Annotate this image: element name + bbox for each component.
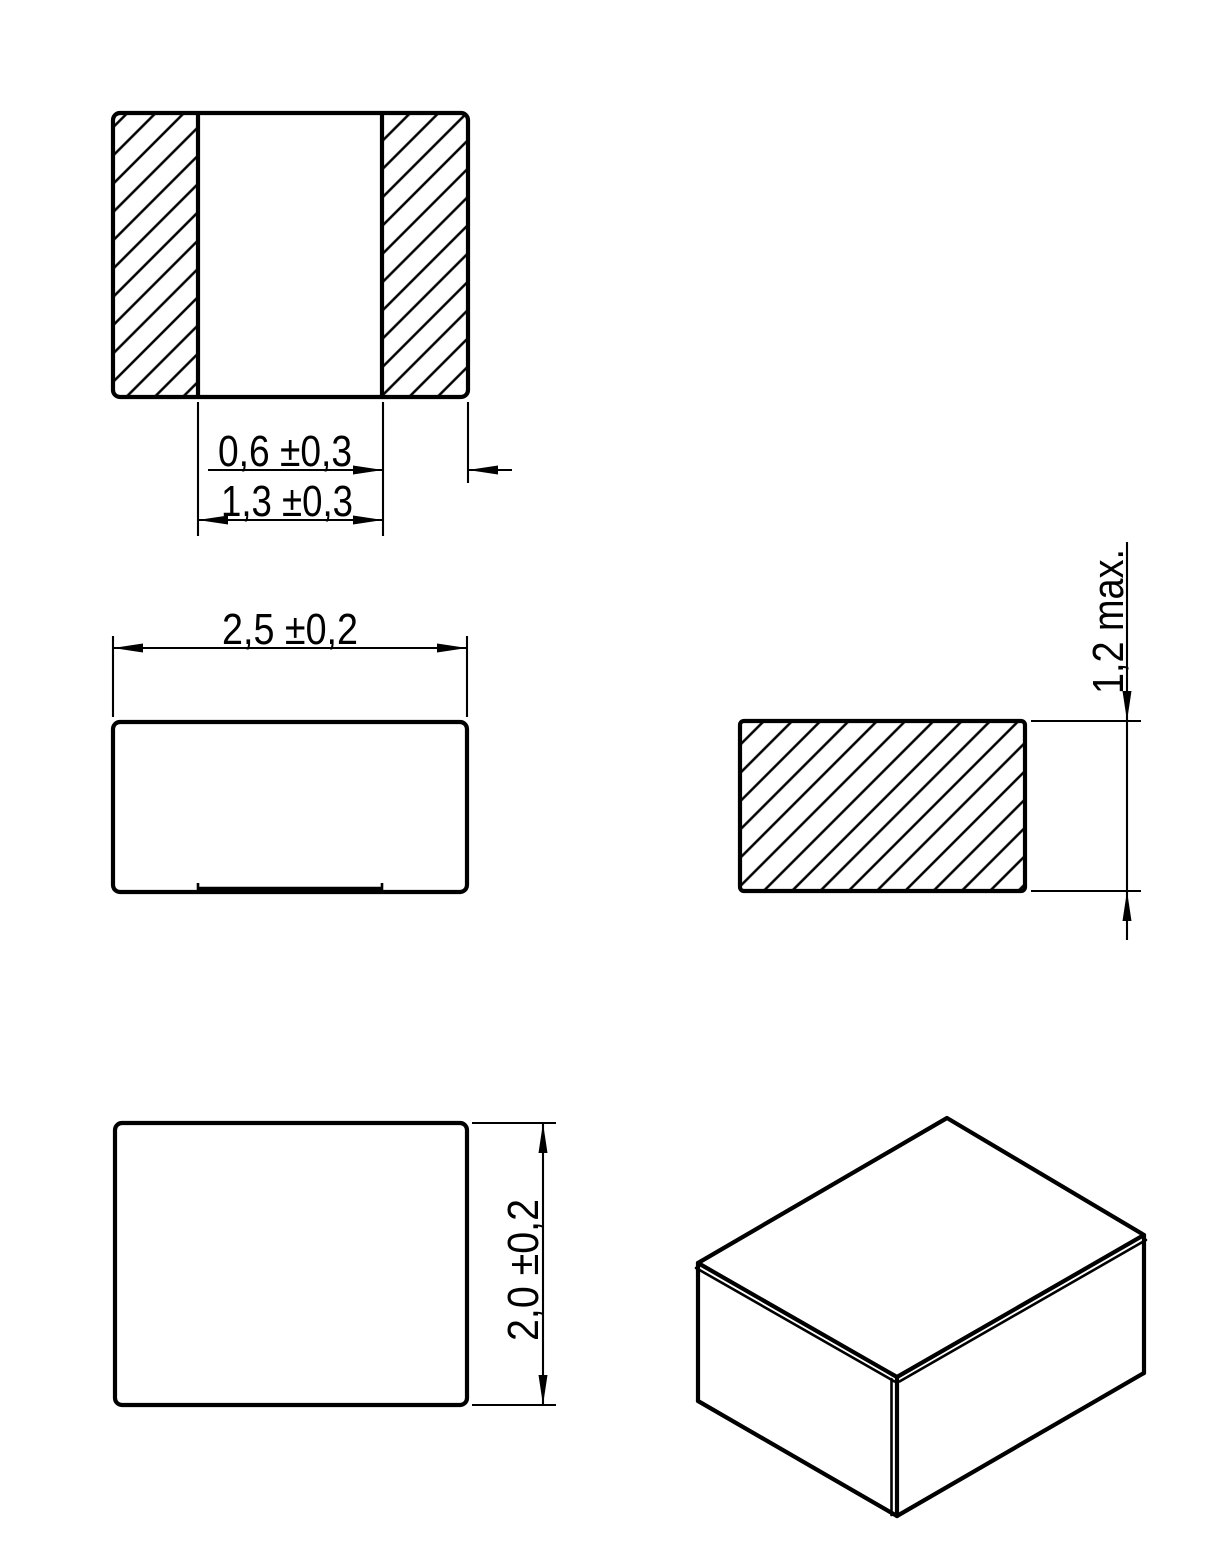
right-termination-hatch: [382, 113, 468, 397]
dimension-arrow: [1123, 891, 1132, 921]
iso-bottom-right-edge: [897, 1373, 1144, 1516]
dimension-arrow: [539, 1123, 548, 1153]
dimension-label-body-thickness-max: 1,2 max.: [1084, 549, 1133, 694]
top-view-terminations: [113, 113, 468, 397]
bottom-view-body-outline: [115, 1123, 467, 1405]
dimension-arrow: [539, 1375, 548, 1405]
dimension-arrow: [1123, 691, 1132, 721]
iso-bottom-left-edge: [698, 1401, 897, 1516]
dimension-label-termination-width: 0,6 ±0,3: [218, 427, 352, 476]
iso-top-face: [698, 1118, 1144, 1377]
iso-right-termination-line: [900, 1240, 1147, 1382]
side-view-hatch: [740, 721, 1025, 891]
bottom-view: 2,0 ±0,2: [115, 1123, 556, 1405]
dimension-label-body-length: 2,5 ±0,2: [222, 605, 358, 654]
front-view: 2,5 ±0,2: [113, 605, 467, 893]
dimension-arrow: [353, 516, 383, 525]
iso-left-termination-line: [696, 1268, 895, 1382]
engineering-drawing: 0,6 ±0,3 1,3 ±0,3 2,5 ±0,2 1,2 max.: [0, 0, 1229, 1558]
dimension-arrow: [437, 644, 467, 653]
front-view-body-outline: [113, 722, 467, 892]
dimension-label-termination-gap: 1,3 ±0,3: [221, 477, 353, 526]
dimension-arrow: [353, 466, 383, 475]
dimension-arrow: [113, 644, 143, 653]
side-view: 1,2 max.: [740, 542, 1141, 940]
drawing-canvas: 0,6 ±0,3 1,3 ±0,3 2,5 ±0,2 1,2 max.: [0, 0, 1229, 1558]
isometric-view: [696, 1118, 1146, 1516]
dimension-label-body-width: 2,0 ±0,2: [499, 1199, 548, 1341]
left-termination-hatch: [113, 113, 198, 397]
top-view: 0,6 ±0,3 1,3 ±0,3: [113, 113, 512, 536]
dimension-arrow: [468, 466, 498, 475]
